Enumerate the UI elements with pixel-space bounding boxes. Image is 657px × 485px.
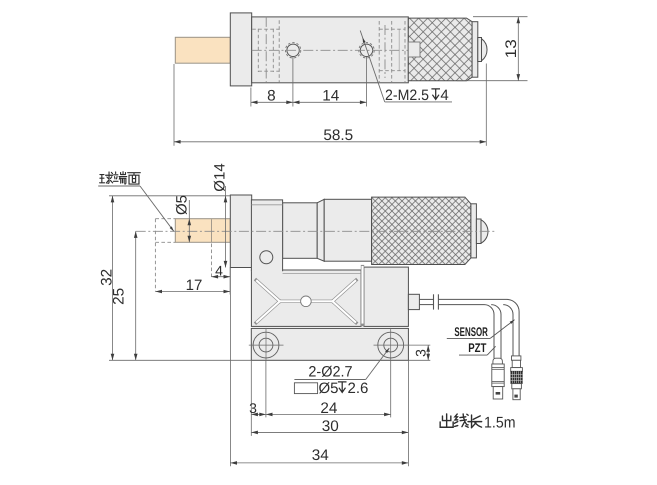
svg-text:58.5: 58.5 <box>323 127 353 144</box>
svg-text:2.6: 2.6 <box>348 380 369 397</box>
svg-text:Ø5: Ø5 <box>174 195 191 215</box>
svg-text:2-Ø2.7: 2-Ø2.7 <box>308 363 352 380</box>
svg-text:30: 30 <box>322 418 339 435</box>
svg-text:13: 13 <box>503 39 520 58</box>
svg-text:Ø5: Ø5 <box>319 380 339 397</box>
svg-text:34: 34 <box>312 447 330 464</box>
svg-text:PZT: PZT <box>468 341 486 355</box>
svg-text:4: 4 <box>215 262 223 278</box>
svg-text:8: 8 <box>267 87 276 104</box>
svg-text:2-M2.5: 2-M2.5 <box>385 87 429 104</box>
svg-text:3: 3 <box>249 400 257 416</box>
svg-text:4: 4 <box>440 87 448 104</box>
svg-text:SENSOR: SENSOR <box>454 325 488 339</box>
svg-text:3: 3 <box>412 349 428 357</box>
svg-text:24: 24 <box>320 400 338 417</box>
svg-text:14: 14 <box>322 87 340 104</box>
svg-text:17: 17 <box>186 277 203 294</box>
svg-text:Ø14: Ø14 <box>212 163 229 191</box>
svg-text:1.5m: 1.5m <box>484 414 516 431</box>
svg-text:32: 32 <box>99 269 116 286</box>
svg-text:25: 25 <box>110 288 127 305</box>
